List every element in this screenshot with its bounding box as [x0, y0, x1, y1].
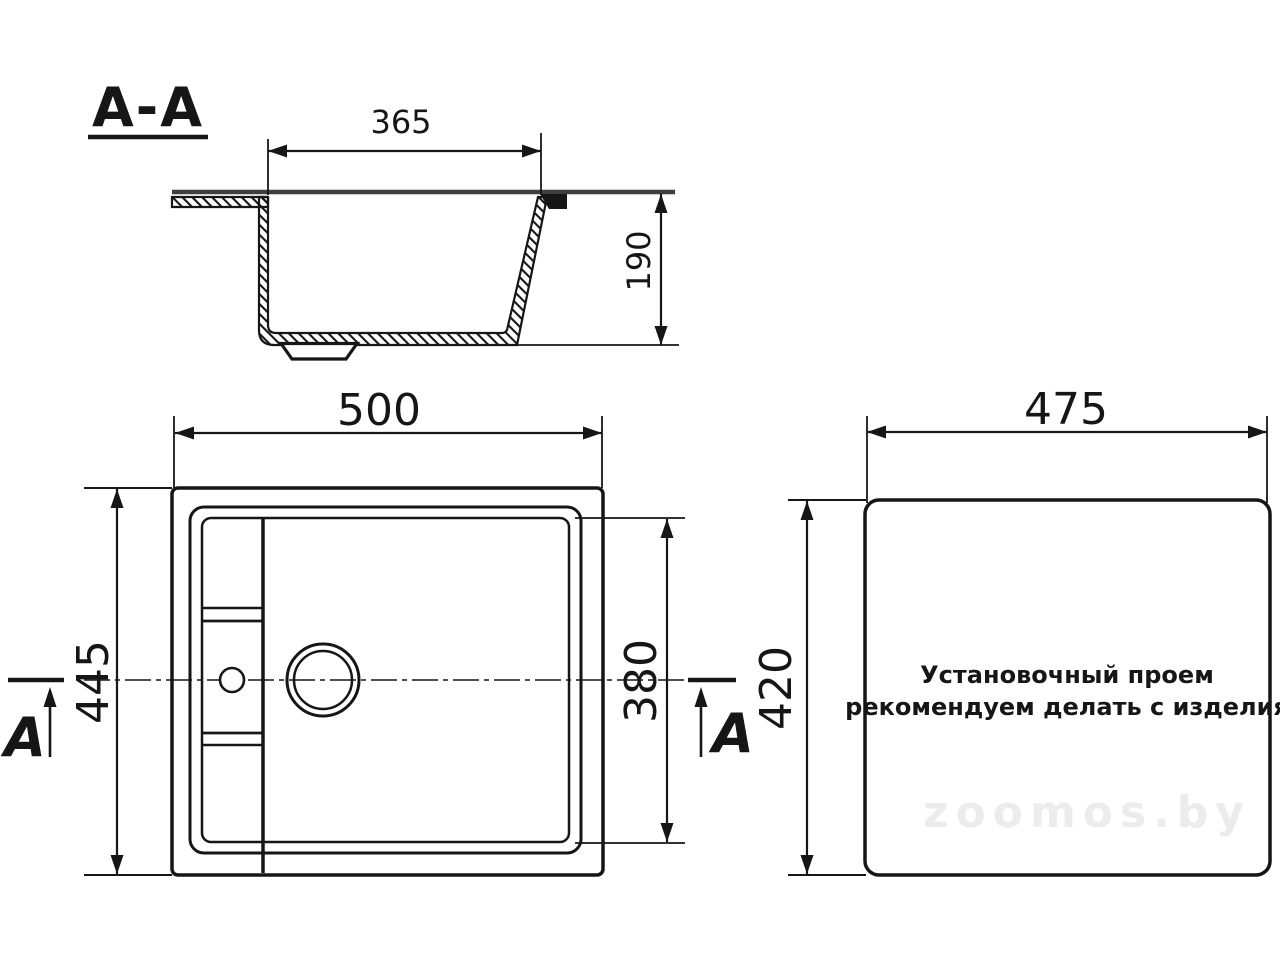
- technical-drawing: A-A 365 190: [0, 0, 1280, 960]
- drawing-page: A-A 365 190: [0, 0, 1280, 960]
- dim-420-text: 420: [751, 646, 802, 730]
- dim-380-text: 380: [616, 639, 667, 723]
- section-bowl-shell: [259, 197, 547, 345]
- dimension-475: 475: [867, 384, 1267, 503]
- plan-view: 500 445 380 A: [0, 385, 754, 875]
- section-marker-right-letter: A: [708, 702, 754, 765]
- dim-475-text: 475: [1024, 384, 1108, 435]
- dimension-365: 365: [268, 103, 541, 195]
- dimension-500: 500: [174, 385, 602, 488]
- dimension-420: 420: [751, 500, 866, 875]
- cutout-view: 475 420 Установочный проем рекомендуем д…: [751, 384, 1280, 875]
- section-marker-left-letter: A: [0, 706, 46, 769]
- section-left-flange: [172, 197, 268, 207]
- section-marker-left: A: [0, 680, 64, 769]
- cutout-note-line1: Установочный проем: [920, 661, 1214, 689]
- section-view: A-A 365 190: [88, 76, 679, 359]
- plan-tap-hole: [220, 668, 244, 692]
- dimension-445: 445: [68, 488, 172, 875]
- section-drain-boss: [281, 344, 357, 360]
- dim-190-text: 190: [620, 230, 658, 291]
- section-label-text: A-A: [92, 76, 204, 139]
- cutout-note-line2: рекомендуем делать с изделия: [845, 693, 1280, 721]
- section-marker-right: A: [688, 680, 754, 765]
- dim-445-text: 445: [68, 640, 119, 724]
- dim-365-text: 365: [370, 103, 431, 141]
- dim-500-text: 500: [337, 385, 421, 436]
- watermark-text: zoomos.by: [923, 787, 1251, 838]
- plan-ledge-strip: [203, 518, 263, 873]
